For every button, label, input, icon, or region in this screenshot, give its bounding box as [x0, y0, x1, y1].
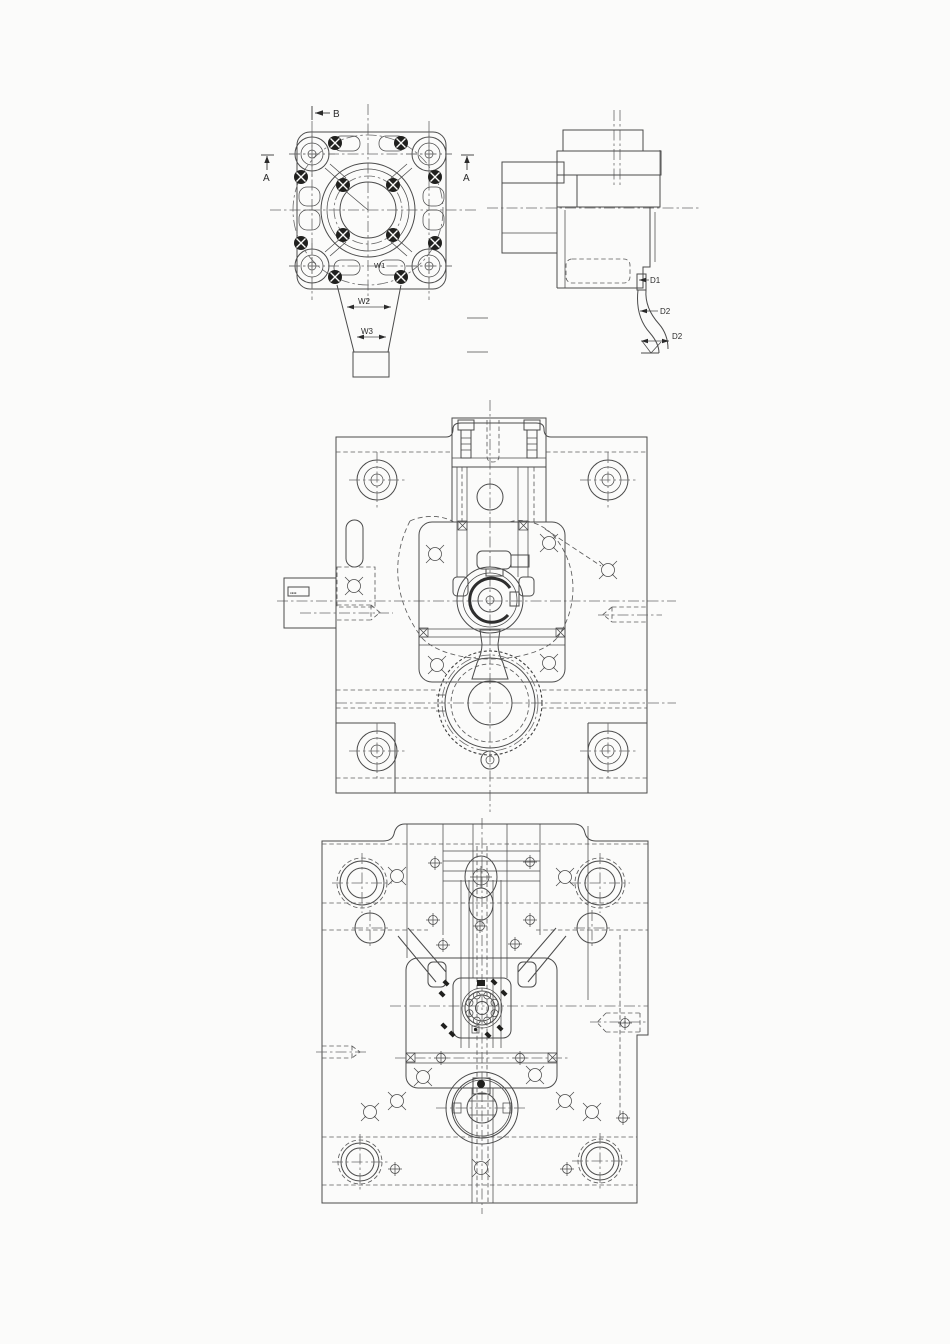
locating-target	[540, 534, 558, 552]
guide-bushing	[570, 853, 630, 913]
locating-target	[599, 561, 617, 579]
side-slot	[346, 520, 363, 567]
center-channel	[407, 824, 588, 1078]
dim-label-d2-lower: D2	[672, 332, 683, 341]
gate-block	[353, 352, 389, 377]
view-arrow-b: B	[312, 106, 340, 120]
parting-lock	[406, 1053, 415, 1062]
section-mark-a-left: A	[261, 155, 274, 184]
section-label-a-left: A	[263, 173, 270, 184]
technical-drawing-canvas: B A A W1 W2 W3	[0, 0, 950, 1344]
locating-target	[583, 1103, 601, 1121]
view-label-b: B	[333, 109, 340, 120]
counterbore-hole	[406, 131, 452, 177]
locating-target	[426, 545, 444, 563]
unit-screws	[438, 978, 507, 1038]
guide-bushing	[332, 853, 392, 913]
locating-target	[388, 867, 406, 885]
counterbore-hole	[349, 723, 405, 779]
parting-lock	[548, 1053, 557, 1062]
locating-target	[388, 1092, 406, 1110]
locating-target	[361, 1103, 379, 1121]
side-drilled-hole-right	[590, 1013, 648, 1032]
counterbore-hole	[289, 243, 335, 289]
dim-label-d2-upper: D2	[660, 307, 671, 316]
mold-assembly-plan-view	[316, 818, 648, 1214]
dim-label-d1: D1	[650, 276, 661, 285]
locating-target	[414, 1068, 432, 1086]
locating-target	[540, 654, 558, 672]
guide-columns	[453, 467, 534, 596]
locating-target	[472, 1159, 490, 1177]
hidden-cavity-outline	[566, 259, 630, 283]
side-connector-block: ▪▪▪▪	[284, 578, 336, 628]
bottom-channel	[472, 1088, 493, 1203]
counterbore-hole	[580, 452, 636, 508]
front-view-flange-plate: B A A W1 W2 W3	[261, 104, 488, 377]
dim-label-w3: W3	[361, 327, 374, 336]
locating-target	[556, 1092, 574, 1110]
dim-label-w2: W2	[358, 297, 371, 306]
gate-dimensions: W1 W2 W3	[337, 261, 488, 377]
counterbore-hole	[349, 452, 405, 508]
counterbore-hole	[289, 131, 335, 177]
scanned-drawing-page: B A A W1 W2 W3	[0, 0, 950, 1344]
locating-target	[428, 656, 446, 674]
side-drilled-hole-right	[598, 607, 662, 622]
side-section-view: D1 D2 D2	[487, 110, 700, 353]
side-drilled-hole-left	[316, 1046, 367, 1058]
dim-label-w1: W1	[374, 261, 385, 270]
central-rotary-unit	[438, 978, 511, 1039]
guide-bushing	[572, 1133, 628, 1189]
locating-target	[345, 577, 363, 595]
locating-target	[556, 868, 574, 886]
guide-bushing	[332, 1134, 388, 1190]
mold-plate-plan-view: ▪▪▪▪	[277, 400, 676, 812]
counterbore-hole	[406, 243, 452, 289]
section-label-a-right: A	[463, 173, 470, 184]
section-mark-a-right: A	[461, 155, 474, 184]
flange-plate-outline	[297, 132, 446, 289]
name-tag-text: ▪▪▪▪	[290, 591, 297, 596]
locating-target	[526, 1066, 544, 1084]
